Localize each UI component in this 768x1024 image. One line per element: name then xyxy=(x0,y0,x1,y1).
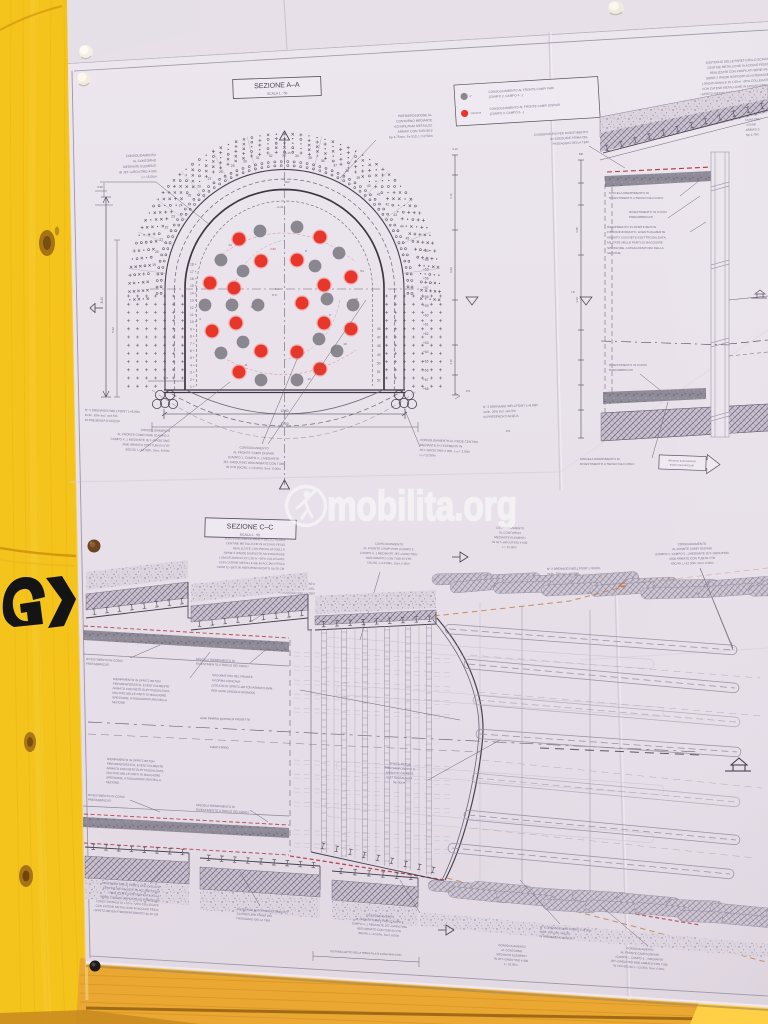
svg-text:8.10: 8.10 xyxy=(100,297,104,304)
svg-text:AL CONTORNO: AL CONTORNO xyxy=(133,158,157,163)
svg-text:+66: +66 xyxy=(423,369,429,373)
svg-text:37: 37 xyxy=(333,164,337,168)
svg-text:0.48: 0.48 xyxy=(575,227,579,233)
svg-text:41: 41 xyxy=(377,193,381,197)
svg-text:+55: +55 xyxy=(423,267,429,271)
svg-text:1 +: 1 + xyxy=(190,385,195,389)
svg-text:PREFABBRICATI: PREFABBRICATI xyxy=(609,368,633,372)
svg-text:1.20: 1.20 xyxy=(275,287,281,291)
svg-text:20: 20 xyxy=(155,250,159,254)
svg-text:12 +: 12 + xyxy=(190,306,197,310)
svg-text:RIEMPIMENTO IN SPRITZ BETON: RIEMPIMENTO IN SPRITZ BETON xyxy=(607,225,656,229)
svg-text:ARMATI C: ARMATI C xyxy=(746,127,761,132)
svg-text:50: 50 xyxy=(377,361,381,365)
svg-text:60C/40, L=12.00m, Sovr. 6.00m: 60C/40, L=12.00m, Sovr. 6.00m xyxy=(671,561,714,566)
svg-text:17 +: 17 + xyxy=(190,270,197,274)
svg-text:CONSOLIDAMENTO: CONSOLIDAMENTO xyxy=(678,542,707,547)
svg-text:4.16: 4.16 xyxy=(575,297,579,303)
svg-text:44: 44 xyxy=(400,224,404,228)
svg-text:19: 19 xyxy=(152,263,156,267)
svg-text:2.60: 2.60 xyxy=(270,247,276,251)
svg-text:38: 38 xyxy=(345,169,349,173)
svg-text:mobilita.org: mobilita.org xyxy=(327,482,517,529)
svg-text:47: 47 xyxy=(377,336,381,340)
svg-text:+57: +57 xyxy=(423,286,429,290)
svg-text:39: 39 xyxy=(356,176,360,180)
svg-text:+65: +65 xyxy=(423,359,429,363)
svg-text:14 +: 14 + xyxy=(190,291,197,295)
svg-text:RIVESTIMENTO IN CONCI: RIVESTIMENTO IN CONCI xyxy=(609,363,647,367)
svg-text:ARMATO CON RETE ELETTROSALDATA: ARMATO CON RETE ELETTROSALDATA, xyxy=(607,235,667,239)
svg-text:24: 24 xyxy=(179,204,183,208)
svg-text:8 +: 8 + xyxy=(190,335,195,339)
svg-text:0.5: 0.5 xyxy=(506,429,511,433)
svg-text:16: 16 xyxy=(343,342,347,346)
svg-text:+54: +54 xyxy=(423,258,429,262)
svg-text:+68: +68 xyxy=(423,387,429,391)
svg-text:MILITATE NELLE PARTI DI MAGGIO: MILITATE NELLE PARTI DI MAGGIORE xyxy=(607,241,663,245)
svg-text:29: 29 xyxy=(231,164,235,168)
svg-text:RIVESTIMENTO A TERGO DEI CONCI: RIVESTIMENTO A TERGO DEI CONCI xyxy=(580,462,635,466)
svg-text:0.10: 0.10 xyxy=(449,193,453,199)
svg-text:P.C.: P.C. xyxy=(272,293,278,297)
svg-text:42: 42 xyxy=(386,203,390,207)
svg-text:6 +: 6 + xyxy=(190,349,195,353)
svg-text:Sp. 30cm: Sp. 30cm xyxy=(393,780,406,785)
svg-text:13 +: 13 + xyxy=(190,299,197,303)
svg-text:+58: +58 xyxy=(423,295,429,299)
svg-text:10 +: 10 + xyxy=(190,320,197,324)
svg-text:+67: +67 xyxy=(423,378,429,382)
svg-text:MISCELA RIEMPIMENTO DI: MISCELA RIEMPIMENTO DI xyxy=(580,457,620,461)
svg-text:SCALA 1 : 50: SCALA 1 : 50 xyxy=(267,91,288,96)
svg-text:RIVESTIMENTO A TERGO DEI CONCI: RIVESTIMENTO A TERGO DEI CONCI xyxy=(609,196,664,200)
svg-text:17: 17 xyxy=(250,305,254,309)
svg-text:PIANO FERRO: PIANO FERRO xyxy=(210,745,229,750)
svg-text:interasse: interasse xyxy=(471,110,482,115)
svg-text:4 +: 4 + xyxy=(190,363,195,367)
svg-text:5 +: 5 + xyxy=(190,356,195,360)
svg-text:31: 31 xyxy=(256,156,260,160)
svg-text:7 +: 7 + xyxy=(190,342,195,346)
svg-text:0.5: 0.5 xyxy=(164,376,168,380)
svg-text:8: 8 xyxy=(305,249,307,253)
svg-text:34: 34 xyxy=(295,154,299,158)
svg-text:36: 36 xyxy=(321,159,325,163)
svg-text:11 +: 11 + xyxy=(190,313,196,317)
svg-text:5.62: 5.62 xyxy=(111,327,115,333)
svg-text:L= 15.00m: L= 15.00m xyxy=(142,175,158,180)
svg-text:35: 35 xyxy=(308,156,312,160)
svg-text:52: 52 xyxy=(377,379,381,383)
svg-text:+56: +56 xyxy=(423,277,429,281)
svg-text:6.92: 6.92 xyxy=(449,267,453,273)
svg-text:SEZIONE: SEZIONE xyxy=(112,700,125,705)
svg-text:RIVESTIMENTO IN CONCI: RIVESTIMENTO IN CONCI xyxy=(629,210,667,214)
svg-text:+60: +60 xyxy=(423,313,429,317)
svg-text:+23 INF.: +23 INF. xyxy=(745,122,757,127)
svg-text:+59: +59 xyxy=(423,304,429,308)
svg-text:0.5: 0.5 xyxy=(466,389,471,393)
svg-text:Sp 4.75m: Sp 4.75m xyxy=(746,132,760,137)
svg-text:PREFABBRICATI: PREFABBRICATI xyxy=(629,215,653,219)
svg-text:SPESSORE, A RISAGOMATURA DELLA: SPESSORE, A RISAGOMATURA DELLA xyxy=(607,246,665,250)
svg-text:21: 21 xyxy=(159,238,163,242)
svg-text:40: 40 xyxy=(367,184,371,188)
svg-text:18 +: 18 + xyxy=(190,263,197,267)
svg-text:SEZIONE: SEZIONE xyxy=(607,251,621,255)
svg-text:25: 25 xyxy=(188,194,192,198)
svg-text:46: 46 xyxy=(377,327,381,331)
svg-text:L= 15.00m: L= 15.00m xyxy=(502,545,517,549)
svg-text:32: 32 xyxy=(269,154,273,158)
svg-text:14: 14 xyxy=(228,243,232,247)
svg-text:LIV: LIV xyxy=(571,291,575,294)
svg-text:43: 43 xyxy=(393,213,397,217)
svg-text:n°: n° xyxy=(469,94,472,98)
svg-text:+62: +62 xyxy=(423,332,429,336)
svg-text:+53: +53 xyxy=(423,249,429,253)
svg-text:0.10: 0.10 xyxy=(452,147,458,151)
svg-text:15 +: 15 + xyxy=(190,284,197,288)
svg-text:SEZIONE C–C: SEZIONE C–C xyxy=(227,523,274,531)
svg-text:48: 48 xyxy=(377,344,381,348)
svg-text:0.90: 0.90 xyxy=(97,185,103,189)
svg-text:11: 11 xyxy=(244,363,247,367)
svg-text:54: 54 xyxy=(360,269,364,273)
svg-text:51: 51 xyxy=(377,370,381,374)
svg-text:18: 18 xyxy=(354,297,358,301)
svg-text:2.19: 2.19 xyxy=(449,359,453,365)
svg-text:12.60: 12.60 xyxy=(281,409,289,413)
svg-text:16 +: 16 + xyxy=(190,277,197,281)
svg-text:IMP: IMP xyxy=(579,153,584,156)
svg-text:9 +: 9 + xyxy=(190,327,195,331)
svg-text:22: 22 xyxy=(165,226,169,230)
svg-text:FIBRORINFORZATO, EVENTUALMENTE: FIBRORINFORZATO, EVENTUALMENTE xyxy=(607,230,665,234)
svg-text:16.15: 16.15 xyxy=(283,151,291,155)
svg-text:+64: +64 xyxy=(423,350,429,354)
svg-text:9: 9 xyxy=(329,313,331,317)
svg-text:27: 27 xyxy=(208,177,212,181)
svg-text:+63: +63 xyxy=(423,341,429,345)
svg-text:3: 3 xyxy=(199,317,201,321)
svg-text:3 +: 3 + xyxy=(190,371,195,375)
svg-text:49: 49 xyxy=(377,353,381,357)
svg-text:2 +: 2 + xyxy=(190,378,195,382)
svg-text:+61: +61 xyxy=(423,323,429,327)
svg-text:+1.21: +1.21 xyxy=(276,205,284,209)
svg-text:26: 26 xyxy=(197,185,201,189)
svg-text:44/2: 44/2 xyxy=(284,180,290,184)
svg-text:SEZIONE: SEZIONE xyxy=(106,780,119,785)
svg-text:13: 13 xyxy=(307,377,311,381)
svg-text:45: 45 xyxy=(406,236,410,240)
svg-text:28: 28 xyxy=(219,170,223,174)
svg-text:MISCELA RIEMPIMENTO DI: MISCELA RIEMPIMENTO DI xyxy=(609,191,649,195)
svg-text:30: 30 xyxy=(243,160,247,164)
svg-text:23: 23 xyxy=(171,214,175,218)
